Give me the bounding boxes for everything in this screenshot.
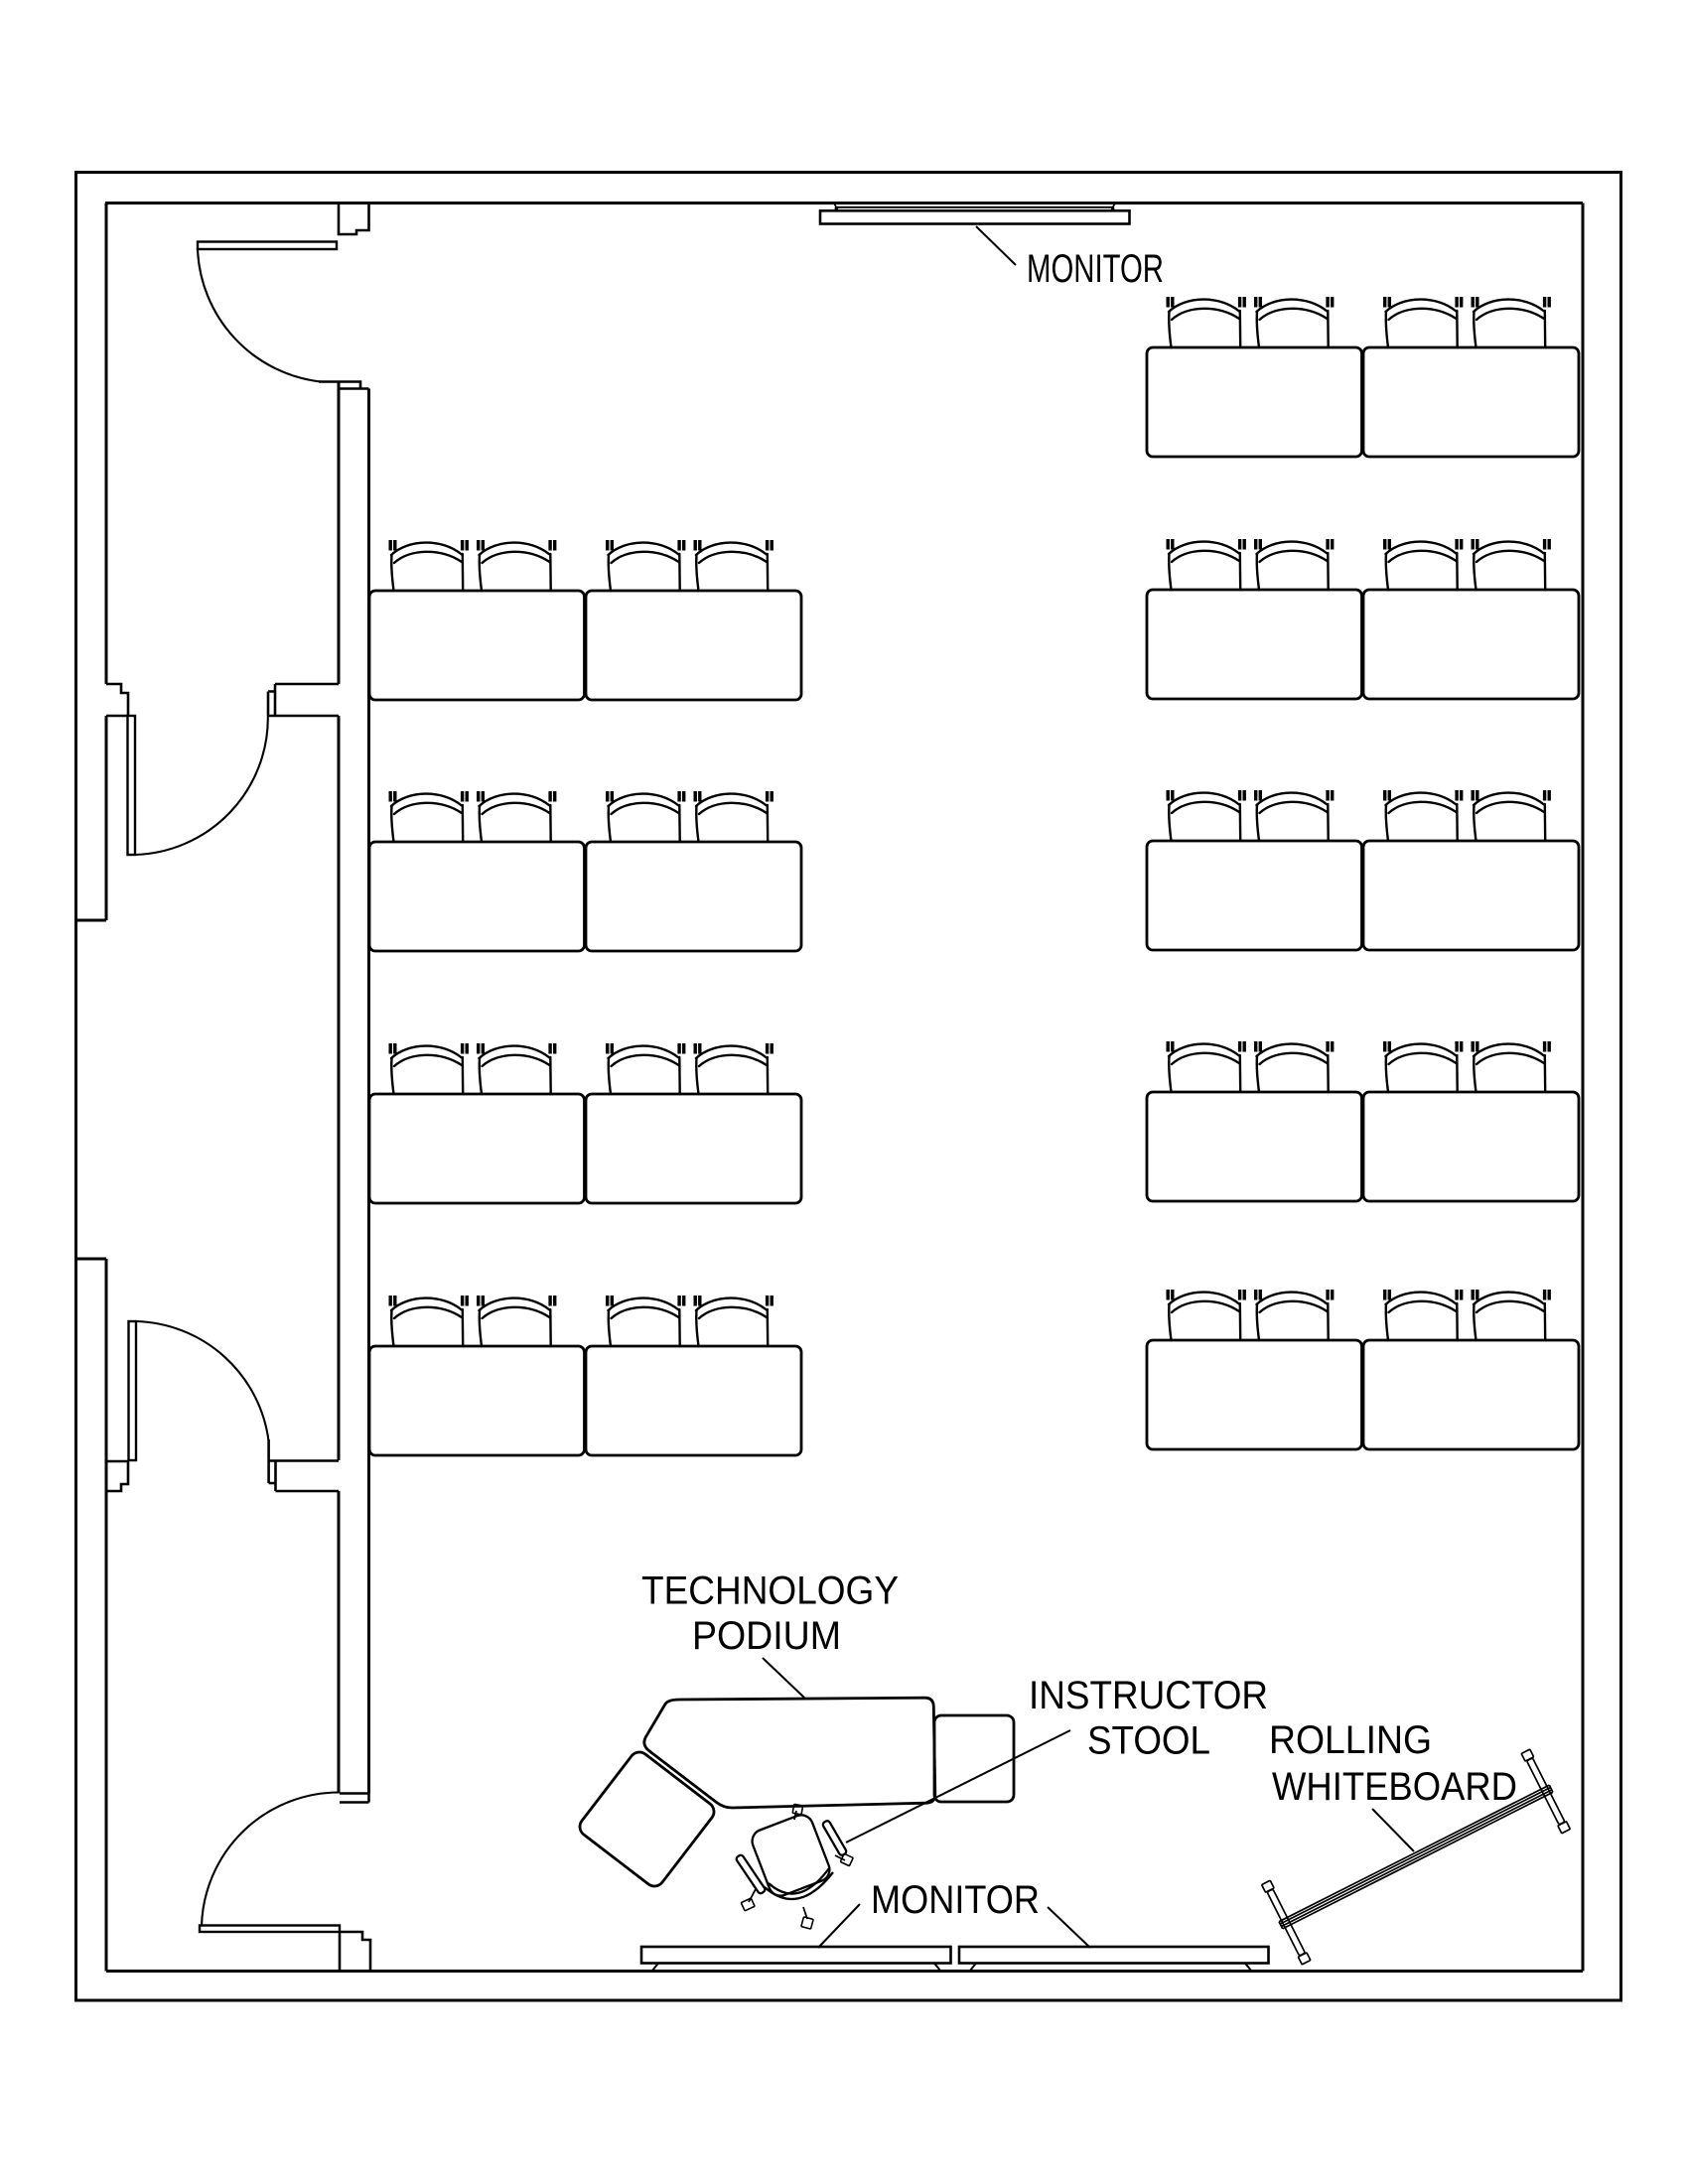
svg-text:PODIUM: PODIUM (692, 1614, 841, 1658)
svg-text:ROLLING: ROLLING (1269, 1718, 1432, 1762)
svg-text:MONITOR: MONITOR (1027, 247, 1164, 291)
svg-text:STOOL: STOOL (1087, 1719, 1210, 1763)
svg-text:INSTRUCTOR: INSTRUCTOR (1029, 1674, 1268, 1717)
svg-text:WHITEBOARD: WHITEBOARD (1272, 1765, 1517, 1809)
svg-text:TECHNOLOGY: TECHNOLOGY (641, 1570, 899, 1613)
svg-text:MONITOR: MONITOR (871, 1878, 1040, 1922)
